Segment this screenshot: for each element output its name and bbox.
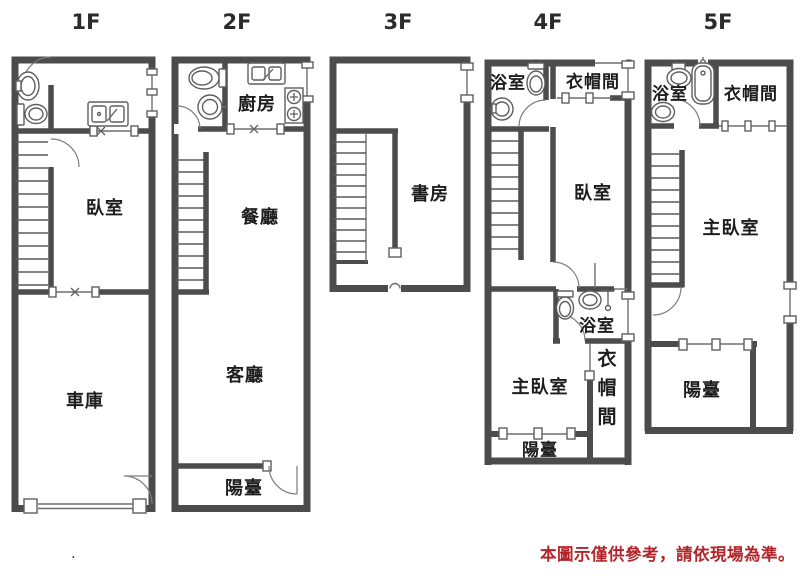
floor-5f-plan bbox=[645, 57, 796, 431]
room-label-2f-dining: 餐廳 bbox=[241, 203, 279, 229]
sink-1f bbox=[16, 72, 39, 100]
floor-label-3f: 3F bbox=[384, 10, 413, 34]
room-label-1f-bedroom: 臥室 bbox=[86, 194, 124, 220]
bathtub-5f bbox=[692, 63, 714, 104]
floor-label-5f: 5F bbox=[704, 10, 733, 34]
floor-3f-stairs bbox=[333, 133, 366, 262]
room-label-5f-balcony: 陽臺 bbox=[683, 376, 721, 402]
shower-4f bbox=[601, 290, 615, 311]
floor-2f-doors bbox=[177, 106, 297, 494]
room-label-4f-closet-mid: 衣帽間 bbox=[596, 345, 618, 432]
floor-label-2f: 2F bbox=[223, 10, 252, 34]
room-label-5f-bath: 浴室 bbox=[652, 80, 688, 105]
floor-4f-stairs bbox=[491, 141, 519, 249]
floor-1f-stairs bbox=[15, 142, 48, 285]
floor-3f-plan bbox=[330, 57, 473, 294]
room-label-4f-bath-mid: 浴室 bbox=[579, 312, 615, 337]
floor-label-1f: 1F bbox=[72, 10, 101, 34]
sink-2f bbox=[198, 95, 226, 119]
sink-4f-mid bbox=[579, 291, 601, 309]
room-label-4f-balcony: 陽臺 bbox=[522, 436, 558, 461]
room-label-2f-living: 客廳 bbox=[226, 361, 264, 387]
disclaimer-text: 本圖示僅供參考，請依現場為準。 bbox=[540, 541, 795, 565]
room-label-5f-closet: 衣帽間 bbox=[724, 80, 778, 105]
floor-2f-plan bbox=[172, 57, 313, 513]
toilet-4f-top bbox=[527, 63, 545, 95]
room-label-5f-master: 主臥室 bbox=[703, 214, 760, 240]
footnote-dot: . bbox=[71, 544, 76, 562]
room-label-4f-bedroom: 臥室 bbox=[574, 179, 612, 205]
toilet-4f-mid bbox=[557, 291, 574, 319]
floor-3f-windows bbox=[388, 63, 473, 293]
kitchen-counter-1f bbox=[88, 102, 128, 126]
room-label-1f-garage: 車庫 bbox=[66, 387, 104, 413]
floor-1f-plan bbox=[12, 57, 157, 517]
room-label-2f-balcony: 陽臺 bbox=[225, 474, 263, 500]
room-label-3f-study: 書房 bbox=[411, 180, 449, 206]
floorplan-canvas: 1F 2F 3F 4F 5F 臥室 車庫 廚房 餐廳 客廳 陽臺 書房 浴室 衣… bbox=[0, 0, 800, 576]
floor-5f-stairs bbox=[651, 154, 680, 274]
room-label-4f-closet-top: 衣帽間 bbox=[566, 68, 620, 93]
toilet-1f bbox=[17, 104, 47, 125]
floor-label-4f: 4F bbox=[534, 10, 563, 34]
floor-2f-stairs bbox=[175, 160, 204, 280]
kitchen-sink-2f bbox=[248, 63, 285, 84]
sink-4f-top bbox=[491, 98, 513, 120]
stove-2f bbox=[285, 88, 303, 123]
toilet-2f bbox=[189, 67, 226, 89]
room-label-2f-kitchen: 廚房 bbox=[238, 90, 276, 116]
room-label-4f-master: 主臥室 bbox=[512, 373, 569, 399]
floor-1f-walls bbox=[12, 57, 155, 513]
room-label-4f-bath-top: 浴室 bbox=[490, 69, 526, 94]
toilet-5f bbox=[652, 103, 675, 122]
